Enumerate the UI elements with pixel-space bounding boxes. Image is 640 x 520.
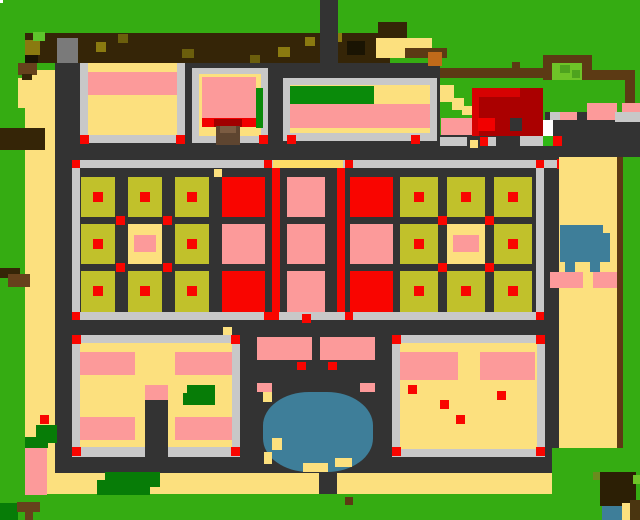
crop-plot-dot xyxy=(508,286,518,296)
crop-plot-dot xyxy=(414,286,424,296)
marker xyxy=(163,216,172,225)
crop-plot-red[interactable] xyxy=(222,271,265,312)
grid-walk-top-yellow xyxy=(273,160,343,168)
white-block xyxy=(543,120,553,136)
fence-segment xyxy=(440,68,545,78)
marker xyxy=(438,263,447,272)
marker xyxy=(485,216,494,225)
game-map[interactable] xyxy=(0,0,640,520)
marker xyxy=(40,415,49,424)
marker xyxy=(287,135,296,144)
crop-plot-dot xyxy=(461,192,471,202)
marker xyxy=(485,263,494,272)
bottomleft-fence-2 xyxy=(25,512,33,520)
building-b-door-top xyxy=(220,126,236,133)
marker xyxy=(392,335,401,344)
marker xyxy=(116,263,125,272)
fence-segment xyxy=(592,70,627,80)
crop-plot-dot xyxy=(93,192,103,202)
pond[interactable] xyxy=(263,392,373,472)
building-c-roof xyxy=(290,104,430,128)
road-right-column xyxy=(545,157,559,473)
sand-notch xyxy=(214,169,222,177)
marker xyxy=(438,216,447,225)
marker xyxy=(408,385,417,394)
pink-patch xyxy=(587,103,617,120)
building-f-window xyxy=(480,352,535,380)
yard-pink-blob xyxy=(25,448,47,495)
building-b-roof xyxy=(202,77,256,120)
crop-plot-pink[interactable] xyxy=(287,224,325,264)
walk-segment xyxy=(488,137,496,146)
yard-bush-2 xyxy=(25,437,48,448)
plaza-tab xyxy=(360,383,375,392)
building-f-window xyxy=(400,352,458,380)
marker xyxy=(536,447,545,456)
pond-sand xyxy=(303,463,328,472)
crop-plot-red[interactable] xyxy=(350,271,393,312)
marker xyxy=(480,137,488,146)
marker xyxy=(176,135,185,144)
stripe-mark xyxy=(345,312,353,320)
chimney-block xyxy=(57,38,78,63)
hedge-speck xyxy=(182,49,194,58)
corner-sand xyxy=(622,503,630,520)
grid-walk-ext xyxy=(544,160,557,168)
plaza-tab xyxy=(257,383,272,392)
pig-leg xyxy=(590,262,600,272)
crop-plot-dot xyxy=(414,239,424,249)
pond-sand xyxy=(335,458,352,467)
sand-notch xyxy=(470,140,478,148)
building-a-roof xyxy=(88,72,177,95)
pond-sand xyxy=(264,452,272,464)
red-stripe xyxy=(337,168,345,312)
hedge-dark-blotch xyxy=(347,41,365,55)
marker xyxy=(440,400,449,409)
pink-patch xyxy=(550,112,560,120)
paddock-bush-spot xyxy=(560,65,570,73)
barn-window xyxy=(510,118,522,131)
pink-patch xyxy=(560,112,577,120)
crop-plot-dot xyxy=(187,239,197,249)
pink-patch xyxy=(622,103,640,112)
marker xyxy=(456,415,465,424)
corner-pixel xyxy=(0,0,3,3)
crop-plot-dot xyxy=(508,239,518,249)
fence-gate xyxy=(428,52,442,66)
hedge-gold-left xyxy=(25,40,40,55)
pig-leg xyxy=(565,262,575,272)
grid-walk-right xyxy=(536,160,544,320)
pig-snout xyxy=(600,233,610,262)
corner-trunk xyxy=(630,500,640,520)
building-d-door-sign xyxy=(145,385,168,400)
building-d-window xyxy=(175,417,232,440)
barn-door[interactable] xyxy=(478,118,495,131)
marker xyxy=(72,312,80,320)
hedge-lightgreen-leaf xyxy=(33,32,45,41)
marker xyxy=(392,447,401,456)
marker xyxy=(302,314,311,323)
sand-notch xyxy=(223,327,232,335)
crop-plot-dot xyxy=(93,239,103,249)
pond-sand xyxy=(272,438,282,450)
building-c-hedge xyxy=(290,86,374,104)
building-b-shrub xyxy=(256,88,263,128)
left-log xyxy=(0,128,45,150)
hedge-speck xyxy=(96,42,106,52)
right-fence-line xyxy=(617,157,623,448)
crop-plot-dot xyxy=(187,192,197,202)
walk-segment xyxy=(440,137,467,146)
red-stripe xyxy=(272,168,280,312)
bottomleft-fence xyxy=(17,502,40,512)
marker xyxy=(411,135,420,144)
marker xyxy=(72,160,80,168)
crop-plot-pink-center xyxy=(134,235,156,252)
crop-plot-pink-center xyxy=(453,235,479,252)
marker xyxy=(163,263,172,272)
walk-segment xyxy=(520,136,543,146)
hedge-speck xyxy=(305,37,315,46)
crop-plot-dot xyxy=(187,286,197,296)
marker xyxy=(231,447,240,456)
pig-body[interactable] xyxy=(560,225,603,262)
marker xyxy=(231,335,240,344)
marker xyxy=(259,135,268,144)
hedge-speck xyxy=(250,55,260,63)
marker xyxy=(72,447,81,456)
paddock-bush-spot xyxy=(572,70,580,78)
corner-leaf-2 xyxy=(633,475,640,484)
crop-plot-pink[interactable] xyxy=(287,271,325,312)
left-yard-sand-bulge xyxy=(18,78,27,108)
hedge-speck xyxy=(118,34,128,43)
marker xyxy=(72,335,81,344)
building-d-window xyxy=(80,352,135,375)
building-d-window xyxy=(175,352,232,375)
pink-stall xyxy=(550,272,583,288)
crop-plot-red[interactable] xyxy=(222,177,265,217)
stripe-mark xyxy=(264,160,272,168)
post-bottom xyxy=(345,497,353,505)
right-sand-strip xyxy=(559,157,617,473)
marker xyxy=(80,135,89,144)
road-exit-top xyxy=(320,0,338,63)
walk-patch xyxy=(627,112,640,122)
crop-plot-pink[interactable] xyxy=(350,224,393,264)
marker xyxy=(497,391,506,400)
plaza-sign xyxy=(257,337,312,360)
bottom-green-band xyxy=(0,494,640,520)
crop-plot-pink[interactable] xyxy=(287,177,325,217)
crop-plot-red[interactable] xyxy=(350,177,393,217)
building-d-bush-2 xyxy=(183,393,193,405)
building-d-door[interactable] xyxy=(145,400,168,472)
marker xyxy=(536,335,545,344)
crop-plot-dot xyxy=(140,192,150,202)
pink-patch-barnyard xyxy=(441,118,472,135)
crop-plot-dot xyxy=(461,286,471,296)
crop-plot-dot xyxy=(414,192,424,202)
bottomleft-darkgreen xyxy=(0,503,18,520)
fence-post-right xyxy=(582,55,592,80)
crop-plot-dot xyxy=(140,286,150,296)
left-edge-browns-2 xyxy=(22,74,32,80)
green-block xyxy=(543,136,553,146)
plaza-sign xyxy=(320,337,375,360)
left-branch-2 xyxy=(8,274,30,287)
plaza-sand-pixel xyxy=(263,392,272,402)
marker xyxy=(553,136,562,146)
barn-roof-top xyxy=(472,88,520,97)
marker xyxy=(297,362,306,370)
marker xyxy=(328,362,337,370)
grid-walk-left xyxy=(72,160,80,320)
walk-patch xyxy=(615,112,627,122)
corner-water xyxy=(602,506,622,520)
hedge-black-left xyxy=(25,55,38,63)
bush-bottom-2 xyxy=(97,480,150,495)
hedge-speck xyxy=(278,47,290,57)
building-d-window xyxy=(80,417,135,440)
stripe-mark xyxy=(264,312,279,320)
marker xyxy=(536,160,544,168)
crop-plot-dot xyxy=(93,286,103,296)
crop-plot-dot xyxy=(508,192,518,202)
sand-step xyxy=(462,106,472,115)
marker xyxy=(116,216,125,225)
stripe-mark xyxy=(345,160,353,168)
pink-stall xyxy=(593,272,617,288)
marker xyxy=(536,312,544,320)
fence-post-small xyxy=(512,62,520,72)
corner-leaf xyxy=(593,472,600,480)
crop-plot-pink[interactable] xyxy=(222,224,265,264)
